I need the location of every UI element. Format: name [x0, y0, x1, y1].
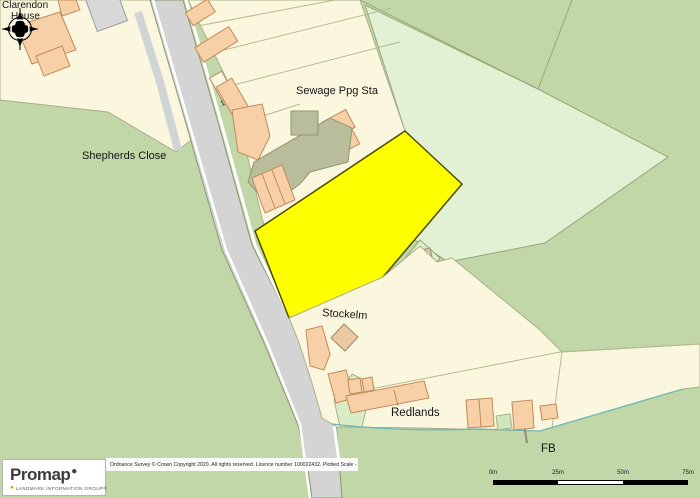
scale-bar: 0m 25m 50m 75m [490, 470, 690, 492]
scale-bar-segments [493, 480, 688, 485]
label-clarendon-line1: Clarendon [2, 0, 48, 11]
scale-segment [494, 481, 558, 484]
label-redlands: Redlands [391, 407, 440, 419]
copyright-text: Ordnance Survey © Crown Copyright 2020. … [106, 458, 358, 471]
promap-logo: Promap● ● LANDMARK INFORMATION GROUP® [2, 459, 106, 496]
promap-brand: Promap● [10, 463, 105, 483]
label-clarendon-line2: House [11, 11, 40, 22]
scale-tick-25: 25m [552, 470, 564, 476]
logo-dot: ● [71, 466, 77, 477]
map-canvas[interactable]: Clarendon House Sewage Ppg Sta Shepherds… [0, 0, 700, 498]
scale-tick-0: 0m [489, 470, 497, 476]
logo-bullet-icon: ● [10, 485, 14, 491]
promap-tagline: ● LANDMARK INFORMATION GROUP® [10, 485, 105, 492]
scale-segment [558, 481, 622, 484]
scale-segment [623, 481, 687, 484]
promap-plot-view: Clarendon House Sewage Ppg Sta Shepherds… [0, 0, 700, 498]
scale-tick-75: 75m [682, 470, 694, 476]
small-green-patch [496, 414, 512, 430]
label-sewage-ppg-sta: Sewage Ppg Sta [296, 85, 379, 97]
scale-tick-50: 50m [617, 470, 629, 476]
label-shepherds-close: Shepherds Close [82, 150, 166, 162]
label-fb: FB [541, 443, 556, 455]
